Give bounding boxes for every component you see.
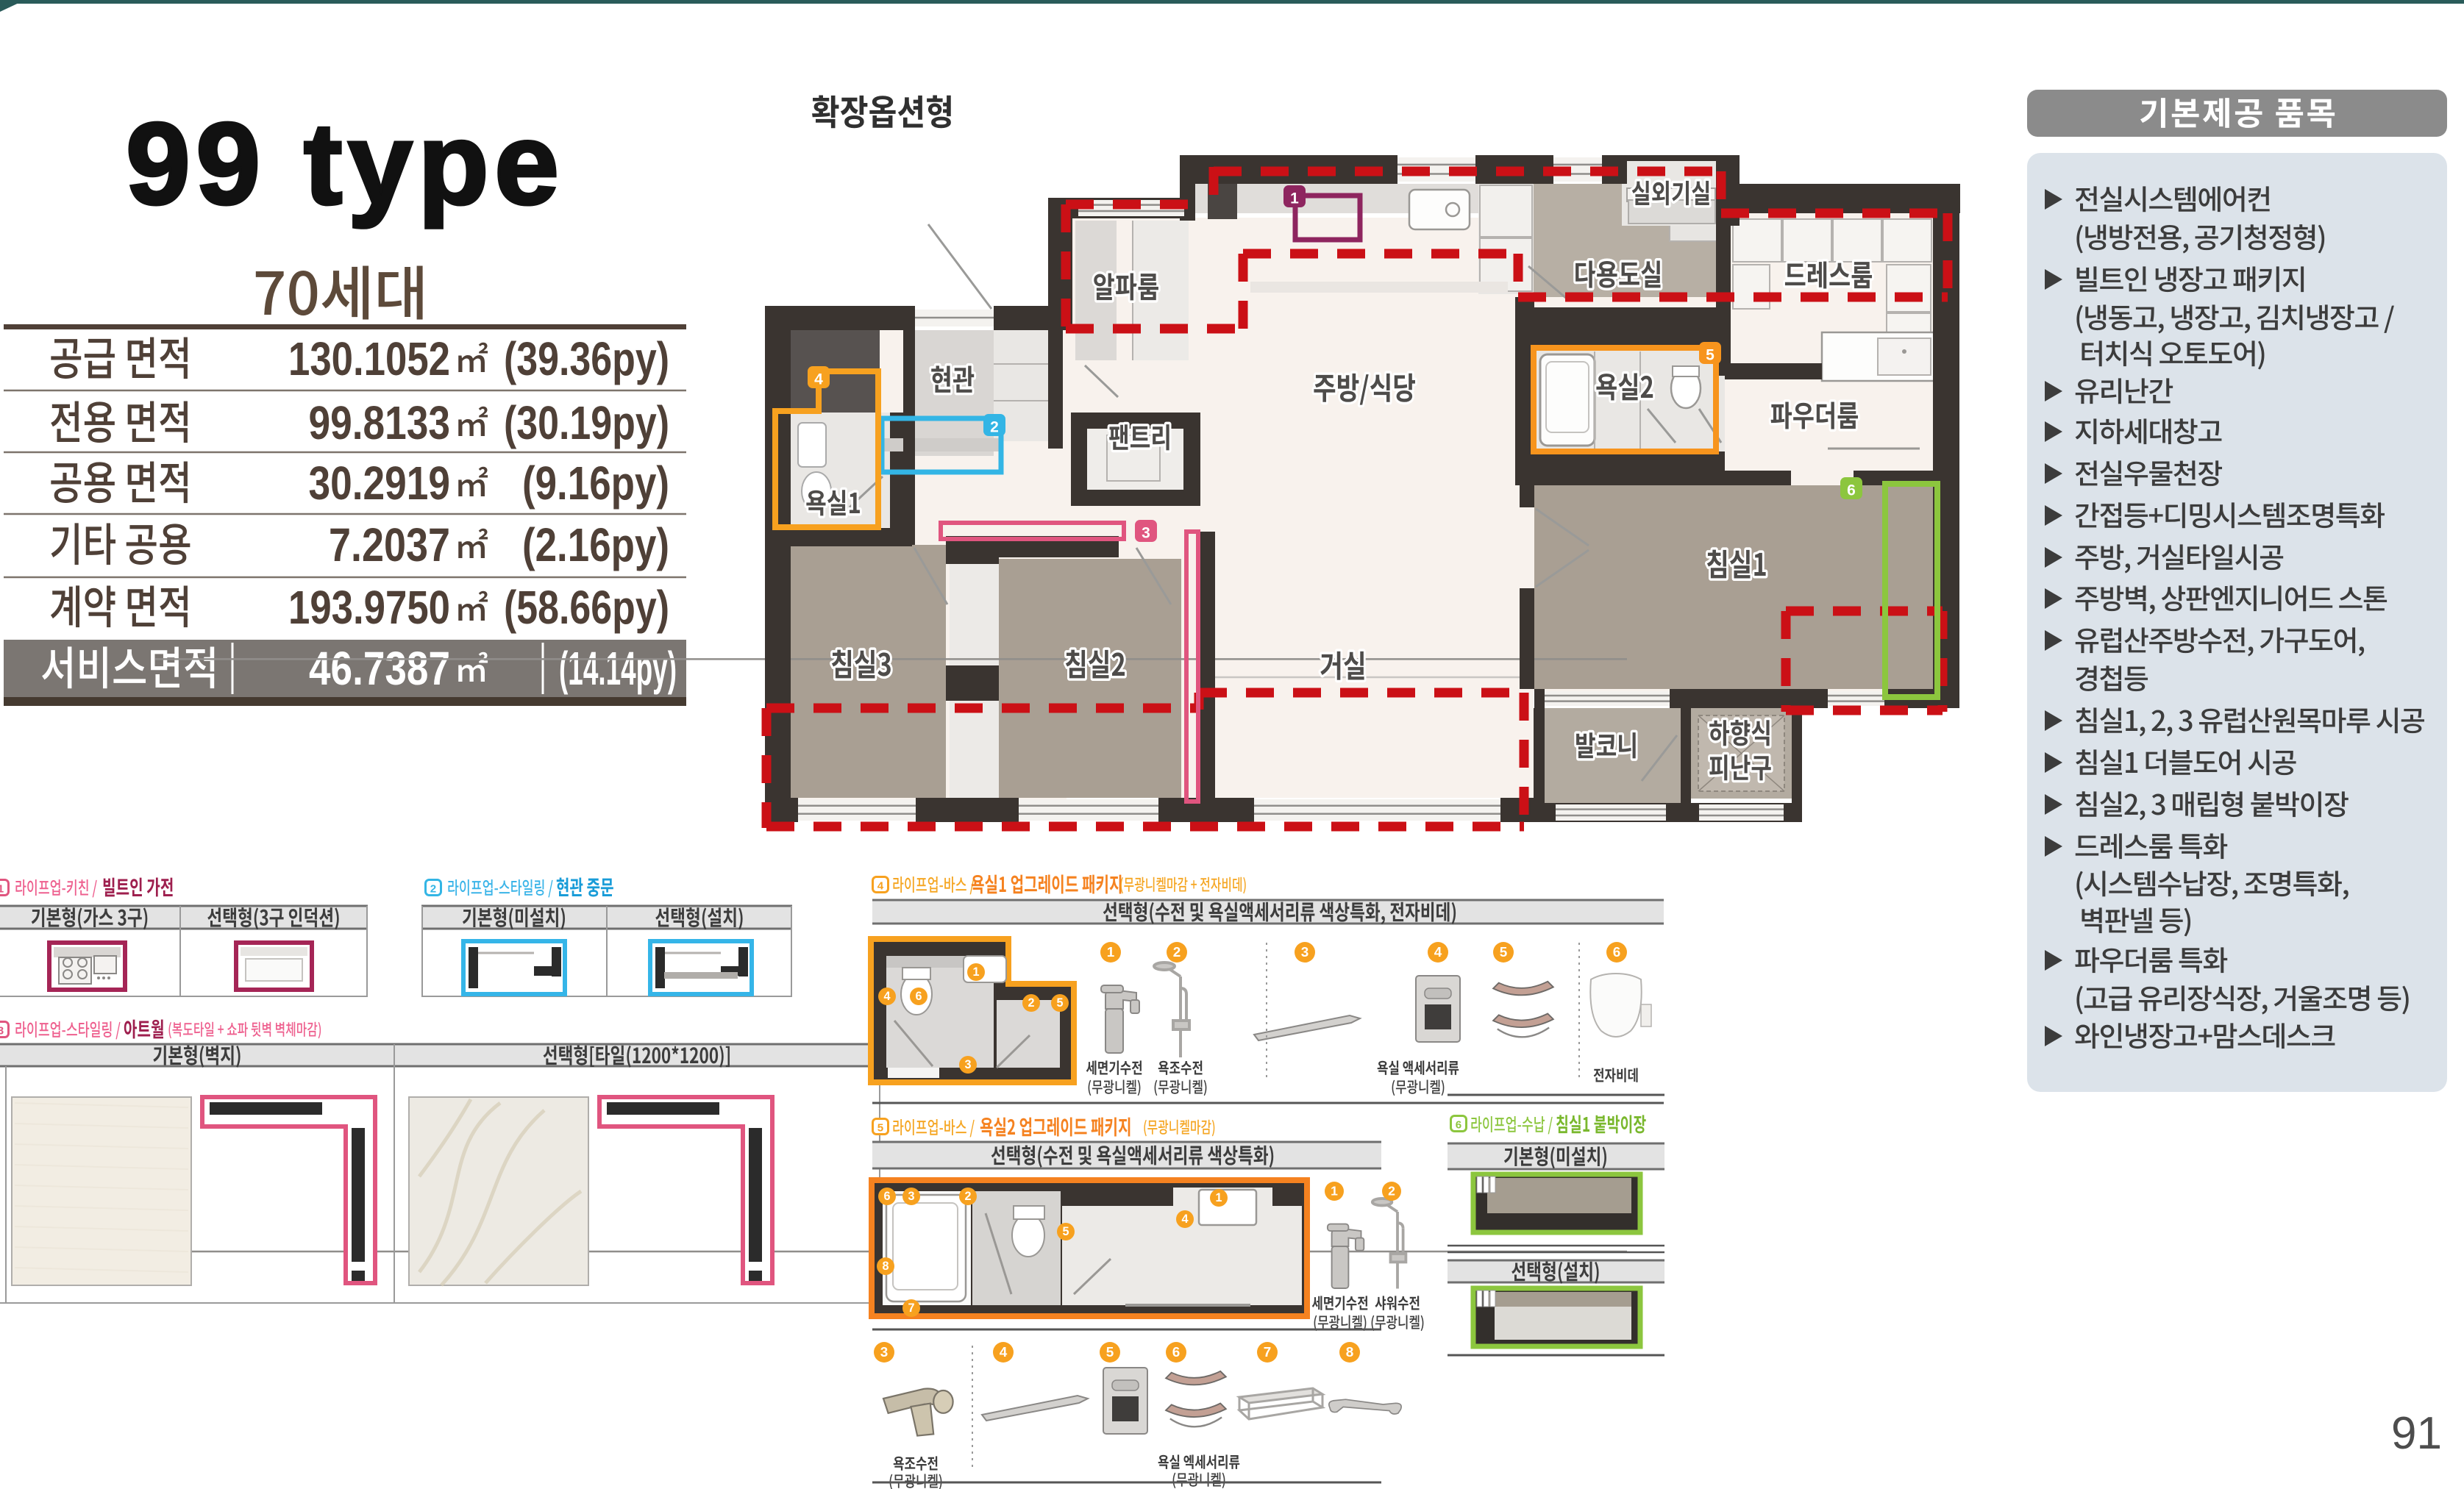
svg-text:46.7387: 46.7387 <box>309 642 450 695</box>
svg-text:1: 1 <box>1215 1191 1222 1204</box>
svg-text:4: 4 <box>883 990 890 1003</box>
svg-text:1: 1 <box>0 883 4 896</box>
svg-text:1: 1 <box>972 965 979 979</box>
svg-text:8: 8 <box>1346 1345 1354 1360</box>
svg-text:30.2919: 30.2919 <box>309 457 451 510</box>
svg-text:2: 2 <box>430 883 436 896</box>
svg-text:6: 6 <box>883 1190 890 1203</box>
svg-text:3: 3 <box>1142 525 1150 542</box>
svg-text:5: 5 <box>1056 996 1063 1010</box>
svg-text:(58.66py): (58.66py) <box>504 581 669 634</box>
svg-text:(2.16py): (2.16py) <box>522 518 669 571</box>
svg-text:3: 3 <box>880 1345 889 1360</box>
svg-text:2: 2 <box>1028 996 1034 1010</box>
svg-text:8: 8 <box>882 1260 889 1273</box>
svg-text:5: 5 <box>877 1122 883 1135</box>
svg-text:(39.36py): (39.36py) <box>504 332 669 385</box>
svg-text:4: 4 <box>1181 1213 1188 1226</box>
svg-text:99.8133: 99.8133 <box>309 396 451 449</box>
svg-text:5: 5 <box>1062 1225 1069 1238</box>
svg-text:4: 4 <box>1434 945 1442 960</box>
svg-text:99 type: 99 type <box>126 99 559 229</box>
svg-text:3: 3 <box>964 1058 971 1071</box>
svg-text:2: 2 <box>1173 945 1181 960</box>
svg-text:(30.19py): (30.19py) <box>504 396 669 449</box>
svg-text:5: 5 <box>1500 945 1508 960</box>
svg-text:6: 6 <box>1613 945 1621 960</box>
svg-text:2: 2 <box>964 1190 971 1203</box>
svg-text:(14.14py): (14.14py) <box>559 642 677 695</box>
svg-text:6: 6 <box>1847 482 1856 499</box>
svg-text:1: 1 <box>1107 945 1115 960</box>
svg-text:5: 5 <box>1106 1345 1114 1360</box>
svg-text:4: 4 <box>814 371 823 388</box>
svg-text:130.1052: 130.1052 <box>288 332 450 385</box>
svg-text:5: 5 <box>1706 347 1715 364</box>
svg-text:4: 4 <box>1000 1345 1008 1360</box>
svg-text:7: 7 <box>1264 1345 1272 1360</box>
svg-text:7: 7 <box>908 1301 914 1315</box>
svg-text:3: 3 <box>908 1190 914 1203</box>
svg-text:6: 6 <box>1172 1345 1181 1360</box>
svg-text:91: 91 <box>2391 1408 2442 1459</box>
svg-text:2: 2 <box>1388 1183 1395 1198</box>
svg-text:2: 2 <box>990 419 999 436</box>
svg-text:193.9750: 193.9750 <box>288 581 450 634</box>
svg-text:(9.16py): (9.16py) <box>522 457 669 510</box>
svg-text:4: 4 <box>877 880 884 893</box>
svg-text:7.2037: 7.2037 <box>329 518 450 571</box>
svg-text:3: 3 <box>1301 945 1309 960</box>
svg-text:1: 1 <box>1290 190 1299 207</box>
svg-text:1: 1 <box>1331 1183 1338 1198</box>
svg-text:6: 6 <box>915 990 922 1003</box>
svg-text:6: 6 <box>1456 1119 1461 1132</box>
svg-text:3: 3 <box>0 1025 4 1038</box>
